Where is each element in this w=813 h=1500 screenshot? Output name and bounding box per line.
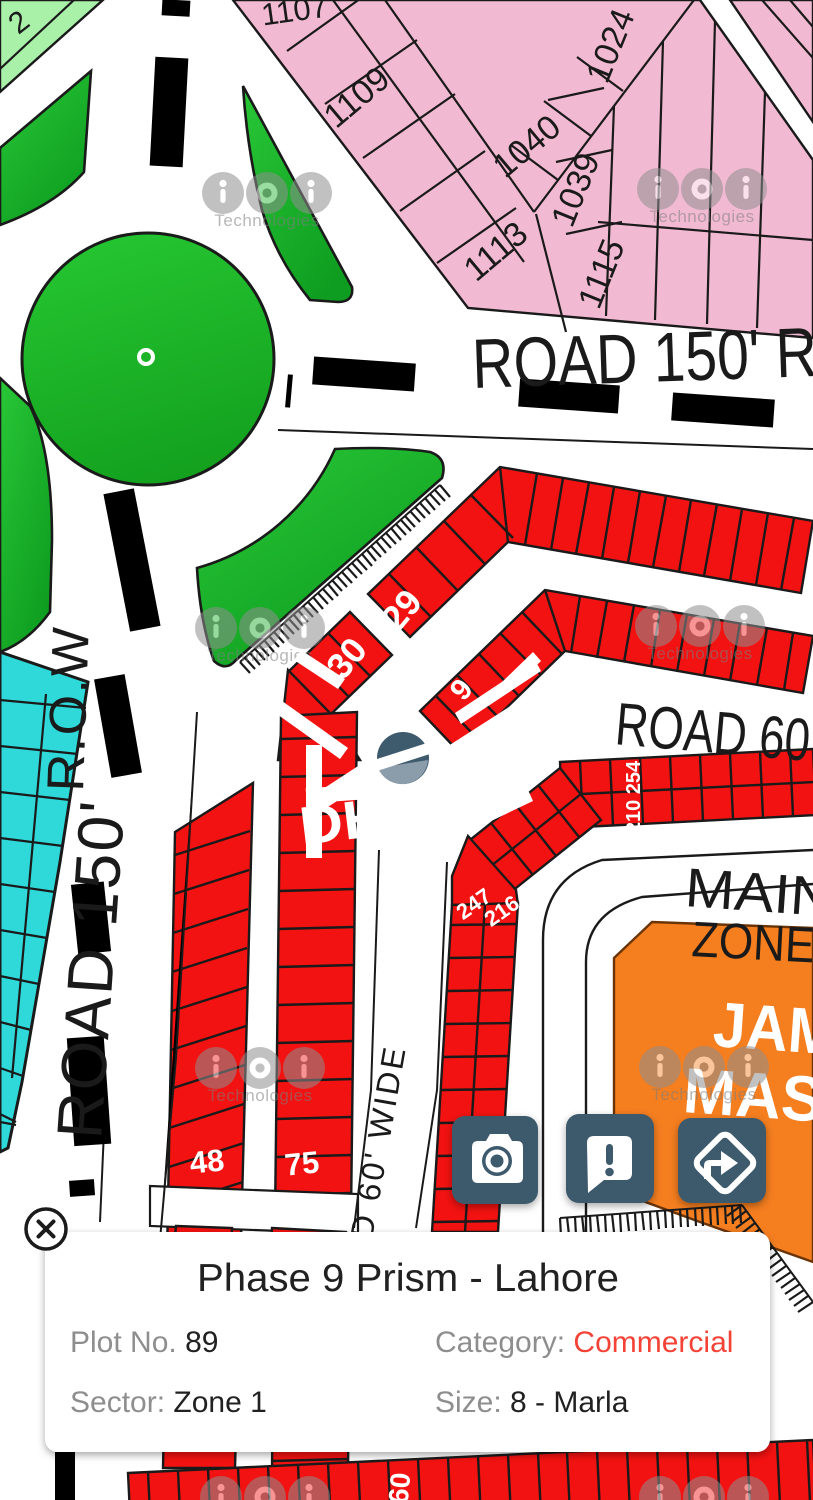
- svg-text:Technologies: Technologies: [207, 646, 312, 665]
- svg-text:ZONE -: ZONE -: [690, 911, 813, 975]
- svg-text:Size: 8 - Marla: Size: 8 - Marla: [435, 1386, 629, 1419]
- svg-text:Technologies: Technologies: [207, 1086, 312, 1105]
- svg-text:ROAD 150' R: ROAD 150' R: [471, 313, 813, 403]
- svg-text:75: 75: [283, 1144, 321, 1182]
- svg-text:48: 48: [188, 1142, 226, 1180]
- svg-text:Technologies: Technologies: [647, 644, 752, 663]
- svg-text:Phase 9 Prism - Lahore: Phase 9 Prism - Lahore: [197, 1257, 619, 1300]
- svg-text:Technologies: Technologies: [651, 1085, 756, 1104]
- svg-text:60: 60: [383, 1471, 417, 1500]
- svg-text:Category: Commercial: Category: Commercial: [435, 1326, 733, 1359]
- svg-text:Plot No. 89: Plot No. 89: [70, 1326, 218, 1359]
- svg-text:Technologies: Technologies: [214, 211, 319, 230]
- svg-text:Sector: Zone 1: Sector: Zone 1: [70, 1386, 267, 1419]
- svg-text:R.O.W: R.O.W: [37, 625, 101, 793]
- svg-text:210 254: 210 254: [623, 760, 645, 833]
- svg-text:Technologies: Technologies: [649, 207, 754, 226]
